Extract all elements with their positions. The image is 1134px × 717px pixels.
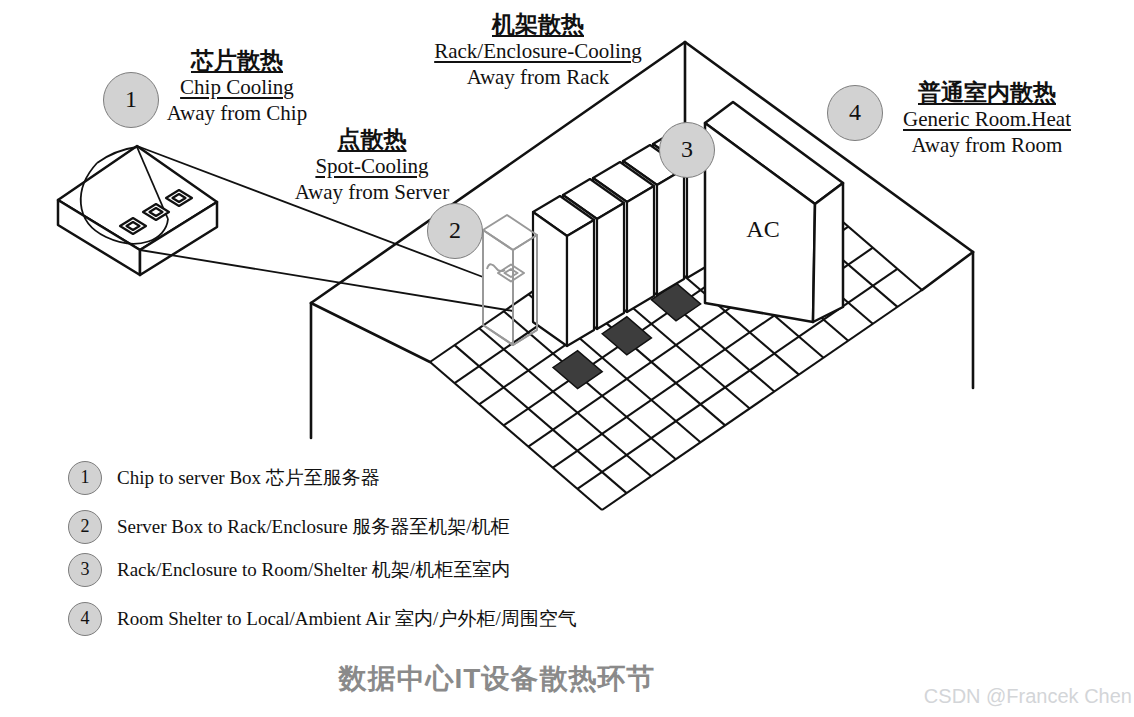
server-box: [487, 264, 524, 281]
diagram-caption: 数据中心IT设备散热环节: [339, 660, 656, 698]
stage-1-subtitle: Away from Chip: [167, 100, 307, 126]
stage-4-title-zh: 普通室内散热: [903, 80, 1071, 106]
chip-board: [58, 146, 217, 275]
highlighted-rack: [483, 215, 537, 345]
stage-2-marker: 2: [427, 203, 483, 259]
stage-2-subtitle: Away from Server: [295, 179, 449, 205]
legend-3-text: Rack/Enclosure to Room/Shelter 机架/机柜至室内: [117, 553, 510, 587]
stage-1-title-en: Chip Cooling: [167, 74, 307, 100]
legend-2-text: Server Box to Rack/Enclosure 服务器至机架/机柜: [117, 510, 510, 544]
ac-unit: [705, 102, 843, 322]
legend-1-text: Chip to server Box 芯片至服务器: [117, 461, 380, 495]
ac-label: AC: [746, 216, 779, 243]
stage-3-title-en: Rack/Enclosure-Cooling: [434, 38, 642, 64]
stage-3-subtitle: Away from Rack: [434, 64, 642, 90]
stage-2-title-zh: 点散热: [295, 127, 449, 153]
stage-2-header: 点散热 Spot-Cooling Away from Server: [295, 127, 449, 205]
stage-1-header: 芯片散热 Chip Cooling Away from Chip: [167, 48, 307, 126]
stage-1-marker: 1: [103, 72, 159, 128]
stage-4-subtitle: Away from Room: [903, 132, 1071, 158]
stage-3-header: 机架散热 Rack/Enclosure-Cooling Away from Ra…: [434, 12, 642, 90]
legend-3-marker: 3: [68, 553, 102, 587]
stage-4-title-en: Generic Room.Heat: [903, 106, 1071, 132]
legend-2-marker: 2: [68, 510, 102, 544]
datacenter-cooling-diagram: 芯片散热 Chip Cooling Away from Chip 点散热 Spo…: [0, 0, 1134, 717]
legend-1-marker: 1: [68, 461, 102, 495]
stage-2-title-en: Spot-Cooling: [295, 153, 449, 179]
stage-4-header: 普通室内散热 Generic Room.Heat Away from Room: [903, 80, 1071, 158]
cable: [487, 264, 505, 271]
stage-4-marker: 4: [827, 85, 883, 141]
legend-4-marker: 4: [68, 602, 102, 636]
stage-1-title-zh: 芯片散热: [167, 48, 307, 74]
stage-3-title-zh: 机架散热: [434, 12, 642, 38]
legend-4-text: Room Shelter to Local/Ambient Air 室内/户外柜…: [117, 602, 577, 636]
watermark: CSDN @Francek Chen: [924, 685, 1132, 708]
stage-3-marker: 3: [659, 122, 715, 178]
